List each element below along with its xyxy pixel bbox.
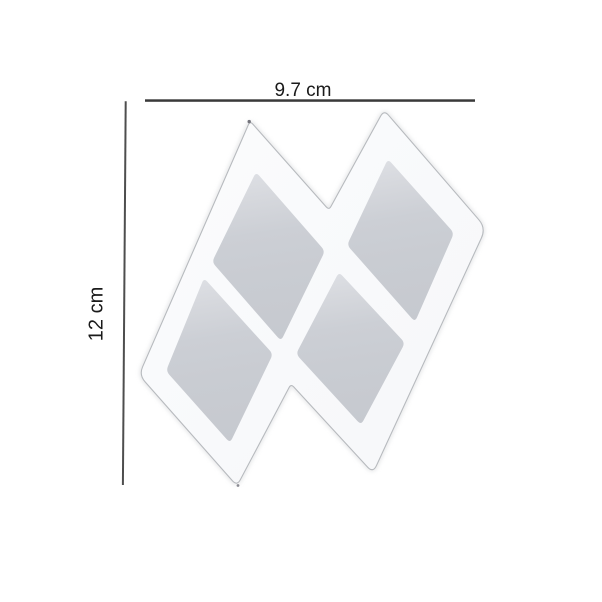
svg-text:12 cm: 12 cm	[86, 287, 108, 341]
svg-text:9.7 cm: 9.7 cm	[274, 80, 331, 101]
